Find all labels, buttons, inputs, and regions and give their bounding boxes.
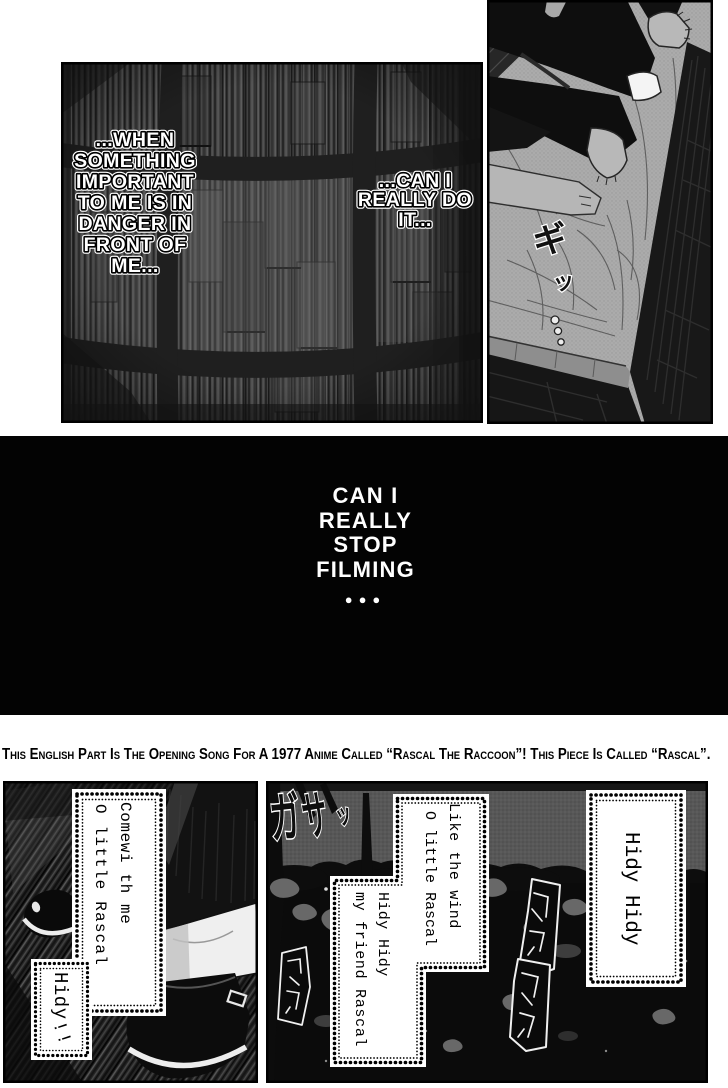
svg-text:O little Rascal: O little Rascal [91, 804, 109, 966]
svg-text:ガ: ガ [267, 787, 303, 850]
svg-text:ッ: ッ [551, 268, 576, 296]
svg-text:REALLY DO: REALLY DO [358, 189, 472, 211]
svg-text:TO ME IS IN: TO ME IS IN [78, 192, 193, 214]
svg-text:ギ: ギ [531, 219, 570, 261]
svg-text:Hidy: Hidy [49, 972, 71, 1020]
svg-text:O little Rascal: O little Rascal [421, 811, 438, 946]
svg-text:Comewi th me: Comewi th me [116, 802, 134, 924]
svg-text:Like the wind: Like the wind [445, 803, 462, 929]
svg-text:Hidy Hidy: Hidy Hidy [374, 892, 391, 977]
svg-text:IT...: IT... [398, 209, 431, 231]
svg-text:FRONT OF: FRONT OF [84, 234, 187, 256]
svg-text:my friend Rascal: my friend Rascal [351, 892, 368, 1047]
svg-text:...WHEN: ...WHEN [96, 129, 175, 151]
svg-text:ME...: ME... [111, 255, 159, 277]
svg-text:SOMETHING: SOMETHING [74, 150, 196, 172]
svg-text:IMPORTANT: IMPORTANT [76, 171, 194, 193]
svg-text:DANGER IN: DANGER IN [78, 213, 191, 235]
svg-text:Hidy Hidy: Hidy Hidy [619, 832, 642, 945]
